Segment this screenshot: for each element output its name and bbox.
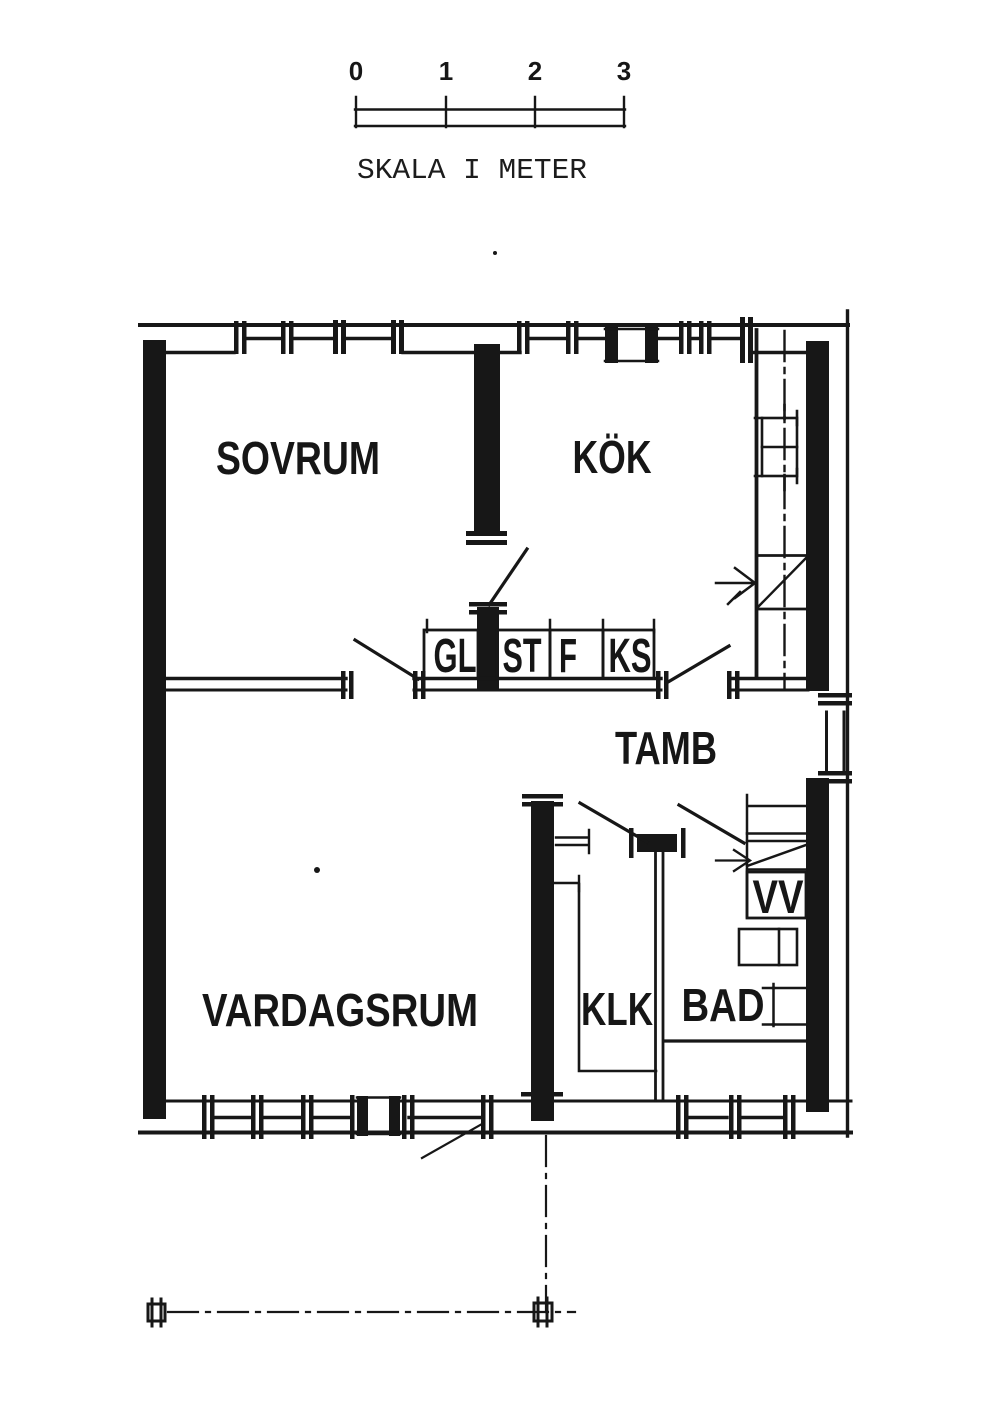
svg-text:ST: ST (503, 630, 542, 683)
svg-text:1: 1 (439, 56, 453, 86)
svg-text:BAD: BAD (682, 979, 765, 1031)
svg-text:TAMB: TAMB (615, 722, 717, 774)
svg-text:VARDAGSRUM: VARDAGSRUM (202, 984, 478, 1036)
svg-text:VV: VV (753, 870, 805, 923)
svg-text:KS: KS (609, 630, 652, 683)
svg-text:0: 0 (349, 56, 363, 86)
svg-text:KÖK: KÖK (573, 431, 652, 483)
svg-text:SOVRUM: SOVRUM (216, 432, 380, 484)
svg-text:GL: GL (434, 630, 477, 683)
svg-text:3: 3 (617, 56, 631, 86)
svg-text:KLK: KLK (581, 983, 653, 1035)
svg-text:SKALA I METER: SKALA I METER (357, 154, 587, 187)
svg-text:2: 2 (528, 56, 542, 86)
svg-text:F: F (559, 630, 577, 683)
